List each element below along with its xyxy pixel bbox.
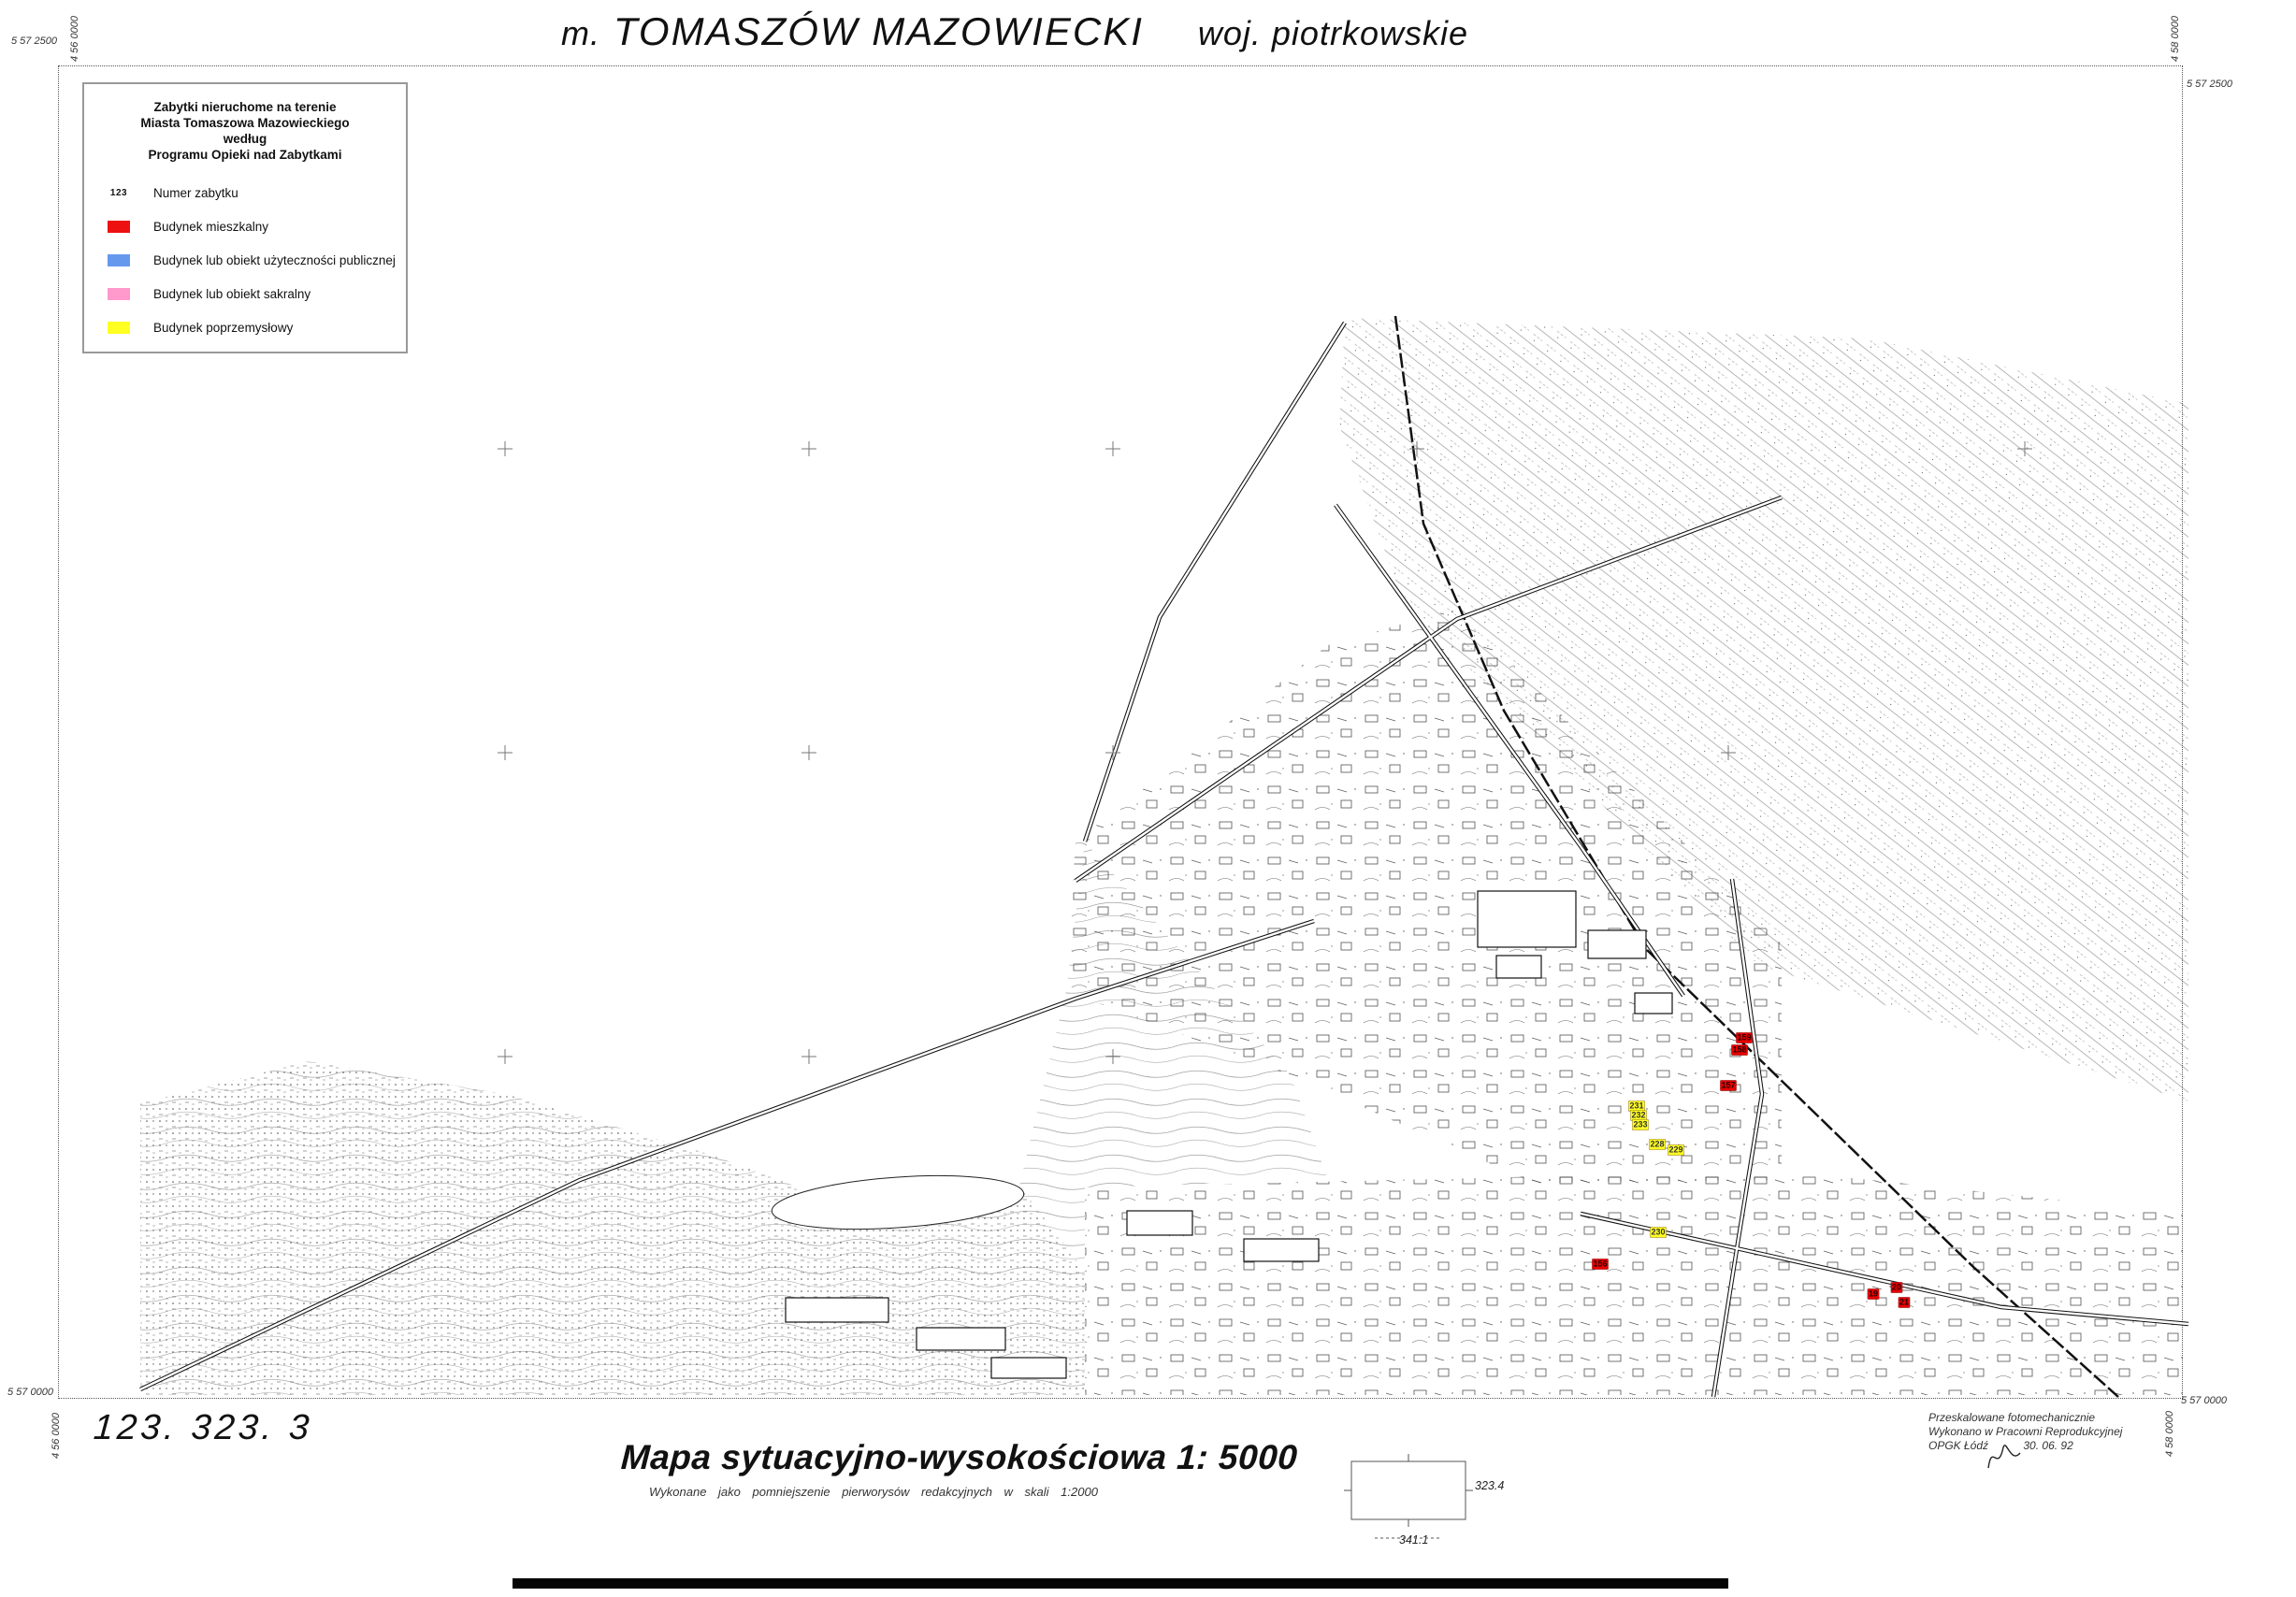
- legend-row-industrial: Budynek poprzemysłowy: [84, 310, 406, 344]
- coord-top-right-v: 4 58 0000: [2170, 16, 2181, 62]
- legend-row-residential: Budynek mieszkalny: [84, 209, 406, 243]
- coord-bottom-right-v: 4 58 0000: [2164, 1411, 2175, 1457]
- legend-title-line: Programu Opieki nad Zabytkami: [84, 147, 406, 163]
- map-marker-229: 229: [1668, 1145, 1683, 1156]
- coord-bottom-right-h: 5 57 0000: [2181, 1395, 2227, 1406]
- legend-title: Zabytki nieruchome na terenie Miasta Tom…: [84, 99, 406, 163]
- map-marker-158: 158: [1731, 1045, 1747, 1056]
- notes-line-2: Wykonano w Pracowni Reprodukcyjnej: [1928, 1425, 2122, 1439]
- map-marker-21: 21: [1899, 1298, 1910, 1308]
- legend-row-public: Budynek lub obiekt użyteczności publiczn…: [84, 243, 406, 277]
- map-marker-156: 156: [1592, 1259, 1608, 1270]
- notes-date: 30. 06. 92: [2023, 1439, 2072, 1452]
- post-industrial-swatch-icon: [108, 322, 130, 334]
- map-marker-230: 230: [1650, 1228, 1666, 1238]
- map-marker-19: 19: [1868, 1289, 1879, 1300]
- legend-label: Budynek lub obiekt sakralny: [153, 287, 310, 301]
- page-title: m.TOMASZÓW MAZOWIECKIwoj. piotrkowskie: [0, 9, 2029, 54]
- public-building-swatch-icon: [108, 254, 130, 266]
- legend-row-sacral: Budynek lub obiekt sakralny: [84, 277, 406, 310]
- legend-rows: 123 Numer zabytku Budynek mieszkalny Bud…: [84, 176, 406, 344]
- map-type-title: Mapa sytuacyjno-wysokościowa 1: 5000: [620, 1438, 1299, 1477]
- monument-number-symbol: 123: [110, 188, 127, 198]
- legend-label: Budynek poprzemysłowy: [153, 321, 293, 335]
- map-type-subtitle: Wykonane jako pomniejszenie pierworysów …: [649, 1485, 1098, 1499]
- legend-label: Budynek mieszkalny: [153, 220, 268, 234]
- map-marker-233: 233: [1632, 1120, 1648, 1130]
- legend-row-number: 123 Numer zabytku: [84, 176, 406, 209]
- coord-top-left-h: 5 57 2500: [11, 36, 57, 47]
- legend-title-line: według: [84, 131, 406, 147]
- title-city: TOMASZÓW MAZOWIECKI: [614, 9, 1144, 53]
- title-region: woj. piotrkowskie: [1198, 14, 1468, 52]
- coord-top-left-v: 4 56 0000: [69, 16, 80, 62]
- legend-label: Numer zabytku: [153, 186, 238, 200]
- title-prefix: m.: [561, 14, 600, 52]
- map-marker-157: 157: [1720, 1081, 1736, 1091]
- scanned-map-page: m.TOMASZÓW MAZOWIECKIwoj. piotrkowskie 5…: [0, 0, 2296, 1597]
- legend-title-line: Zabytki nieruchome na terenie: [84, 99, 406, 115]
- coord-top-right-h: 5 57 2500: [2187, 79, 2232, 90]
- sheet-number: 123. 323. 3: [92, 1408, 313, 1448]
- reproduction-notes: Przeskalowane fotomechanicznie Wykonano …: [1928, 1411, 2122, 1453]
- notes-org: OPGK Łódź: [1928, 1439, 1988, 1452]
- legend-box: Zabytki nieruchome na terenie Miasta Tom…: [82, 82, 408, 353]
- coord-bottom-left-v: 4 56 0000: [51, 1413, 62, 1459]
- map-marker-159: 159: [1736, 1033, 1752, 1043]
- map-marker-228: 228: [1649, 1140, 1665, 1150]
- legend-title-line: Miasta Tomaszowa Mazowieckiego: [84, 115, 406, 131]
- notes-line-1: Przeskalowane fotomechanicznie: [1928, 1411, 2122, 1425]
- map-marker-20: 20: [1891, 1283, 1902, 1293]
- legend-label: Budynek lub obiekt użyteczności publiczn…: [153, 253, 396, 267]
- notes-line-3: OPGK Łódź 30. 06. 92: [1928, 1439, 2122, 1453]
- coord-bottom-left-h: 5 57 0000: [7, 1387, 53, 1398]
- residential-swatch-icon: [108, 221, 130, 233]
- sacral-swatch-icon: [108, 288, 130, 300]
